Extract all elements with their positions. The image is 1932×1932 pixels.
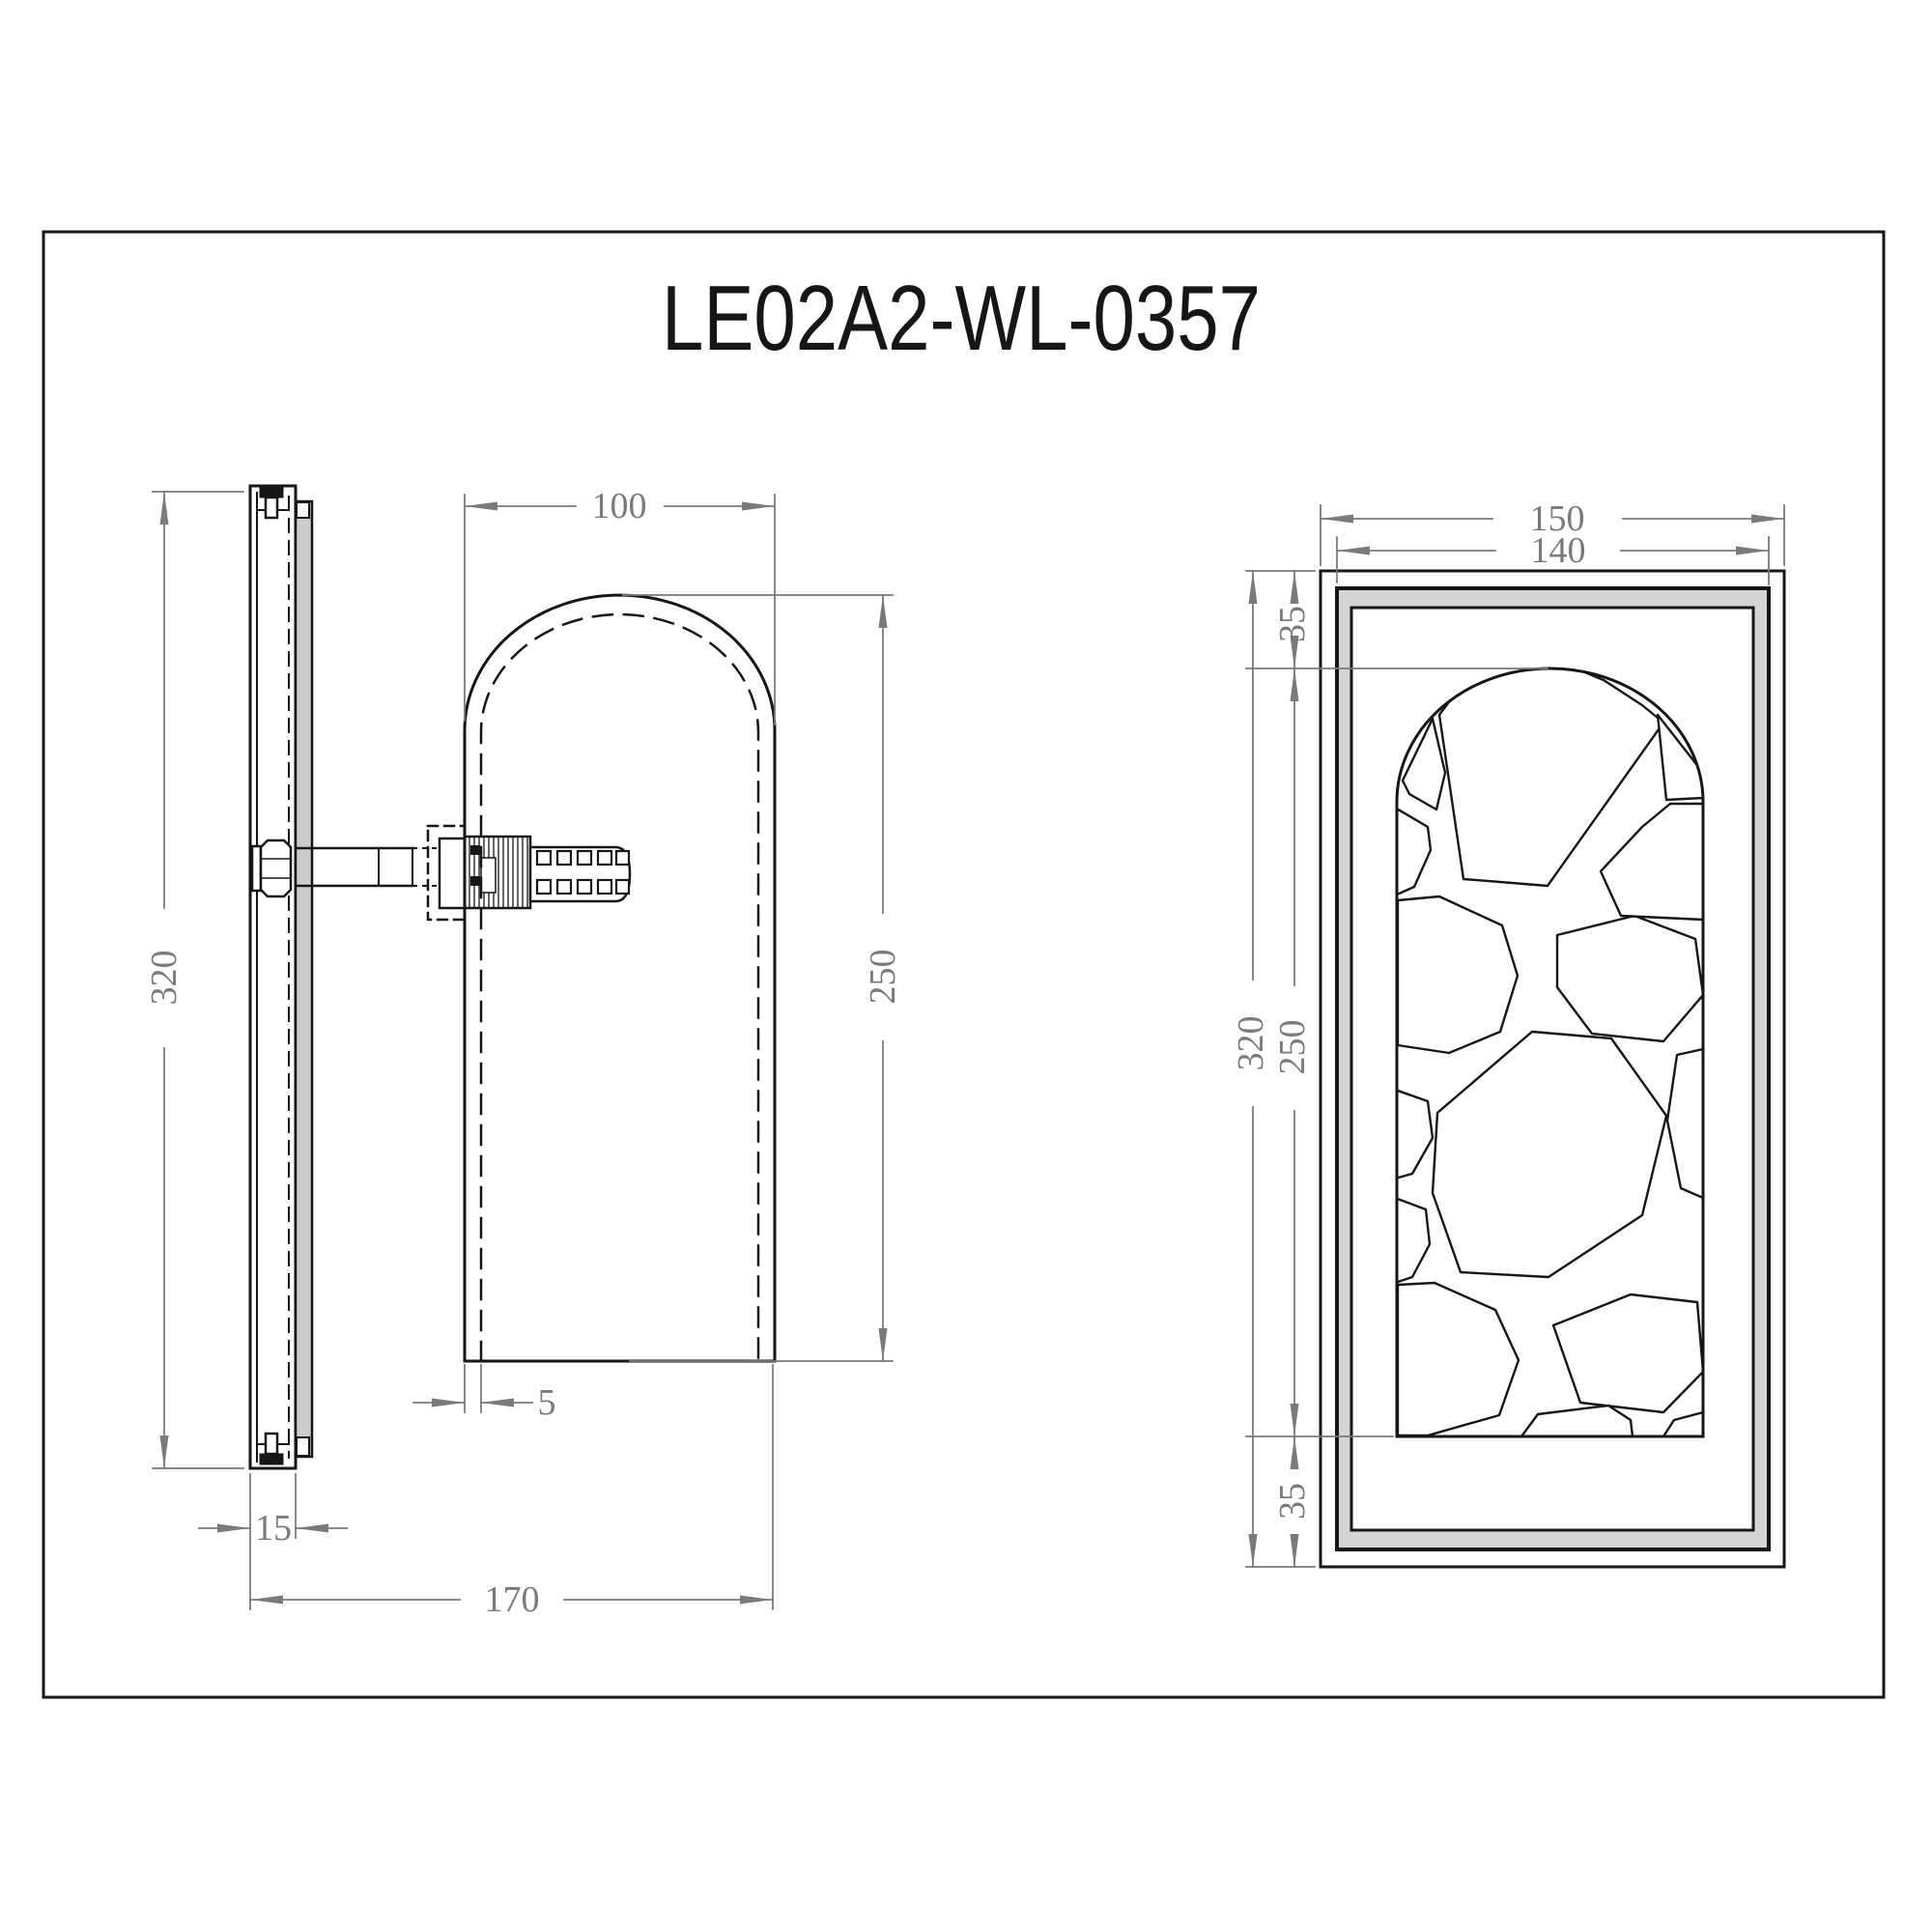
dim-side-shade-width: 100 <box>592 486 647 526</box>
drawing-title: LE02A2-WL-0357 <box>662 267 1261 370</box>
dim-front-overall-height: 320 <box>1231 1016 1271 1071</box>
dim-side-overall-depth: 170 <box>485 1579 540 1620</box>
dim-front-window-height: 250 <box>1272 1020 1313 1075</box>
mounting-bolt <box>252 840 291 896</box>
dim-front-bottom-margin: 35 <box>1272 1483 1313 1520</box>
led-bulb <box>530 847 630 901</box>
shade-inner-dashed <box>481 614 758 1361</box>
front-view: 150 140 35 250 35 320 <box>1231 498 1784 1567</box>
side-view: 320 100 250 5 15 170 <box>144 486 903 1620</box>
dim-side-wall-thickness: 5 <box>538 1382 556 1423</box>
dim-side-shade-height: 250 <box>863 950 903 1005</box>
back-panel <box>296 501 312 1457</box>
dim-front-top-margin: 35 <box>1272 606 1313 642</box>
drawing-sheet: LE02A2-WL-0357 <box>0 0 1932 1932</box>
backplate <box>250 486 296 1468</box>
lamp-socket <box>465 837 530 908</box>
socket-bracket <box>428 826 465 920</box>
mounting-arm <box>296 848 454 886</box>
dim-side-backplate-depth: 15 <box>255 1508 292 1548</box>
shade-profile <box>465 595 775 1361</box>
dim-side-overall-height: 320 <box>144 951 185 1006</box>
technical-drawing: LE02A2-WL-0357 <box>0 0 1932 1932</box>
dim-front-inner-width: 140 <box>1531 530 1586 571</box>
